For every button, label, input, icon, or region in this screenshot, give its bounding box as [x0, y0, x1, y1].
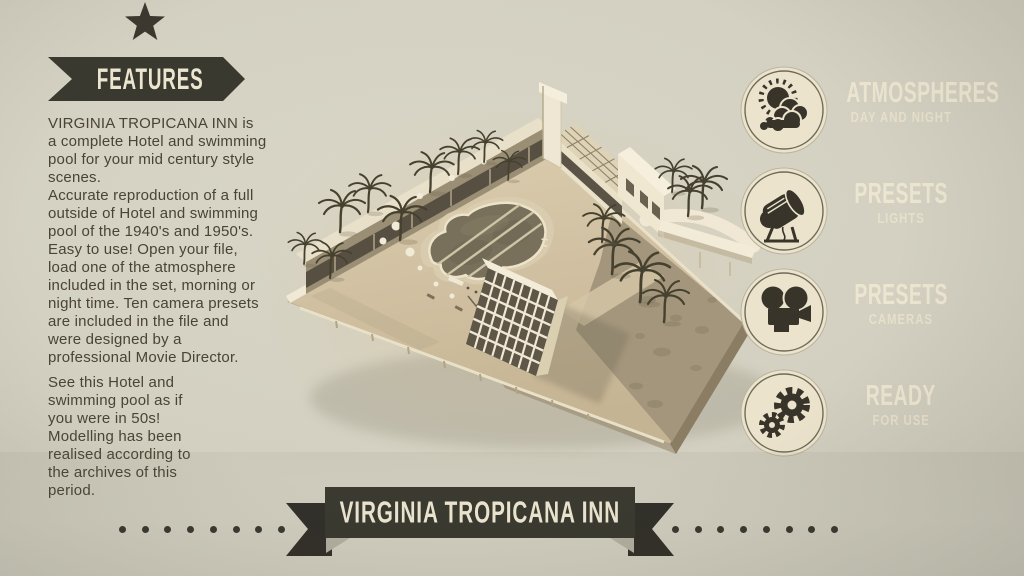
page-background: FEATURES VIRGINIA TROPICANA INN is a com…: [0, 0, 1024, 576]
dot: [808, 526, 815, 533]
dot: [278, 526, 285, 533]
feature-subtitle: DAY AND NIGHT: [836, 110, 966, 124]
spotlight-icon: [740, 167, 828, 255]
dot: [210, 526, 217, 533]
dot: [740, 526, 747, 533]
star-icon: [119, 0, 171, 48]
dot: [717, 526, 724, 533]
dot: [233, 526, 240, 533]
feature-list: ATMOSPHERES DAY AND NIGHT: [740, 66, 1020, 470]
hotel-render-illustration: [250, 78, 790, 478]
feature-title: PRESETS: [836, 181, 966, 207]
gears-icon: [740, 369, 828, 457]
features-ribbon-label: FEATURES: [70, 57, 230, 101]
dotted-divider-right: [672, 525, 838, 533]
feature-item-preset-lights: PRESETS LIGHTS: [740, 167, 1020, 255]
feature-title: ATMOSPHERES: [836, 80, 966, 106]
dot: [786, 526, 793, 533]
feature-subtitle: FOR USE: [836, 413, 966, 427]
banner-title: VIRGINIA TROPICANA INN: [330, 487, 630, 538]
dot: [695, 526, 702, 533]
feature-title: PRESETS: [836, 282, 966, 308]
dot: [763, 526, 770, 533]
feature-subtitle: CAMERAS: [836, 312, 966, 326]
sun-and-clouds-icon: [740, 66, 828, 154]
dot: [187, 526, 194, 533]
dotted-divider-left: [119, 525, 285, 533]
feature-item-ready: READY FOR USE: [740, 369, 1020, 457]
dot: [672, 526, 679, 533]
dot: [142, 526, 149, 533]
dot: [255, 526, 262, 533]
movie-camera-icon: [740, 268, 828, 356]
feature-title: READY: [836, 383, 966, 409]
feature-item-preset-cameras: PRESETS CAMERAS: [740, 268, 1020, 356]
dot: [831, 526, 838, 533]
feature-subtitle: LIGHTS: [836, 211, 966, 225]
dot: [119, 526, 126, 533]
feature-item-atmospheres: ATMOSPHERES DAY AND NIGHT: [740, 66, 1020, 154]
dot: [164, 526, 171, 533]
